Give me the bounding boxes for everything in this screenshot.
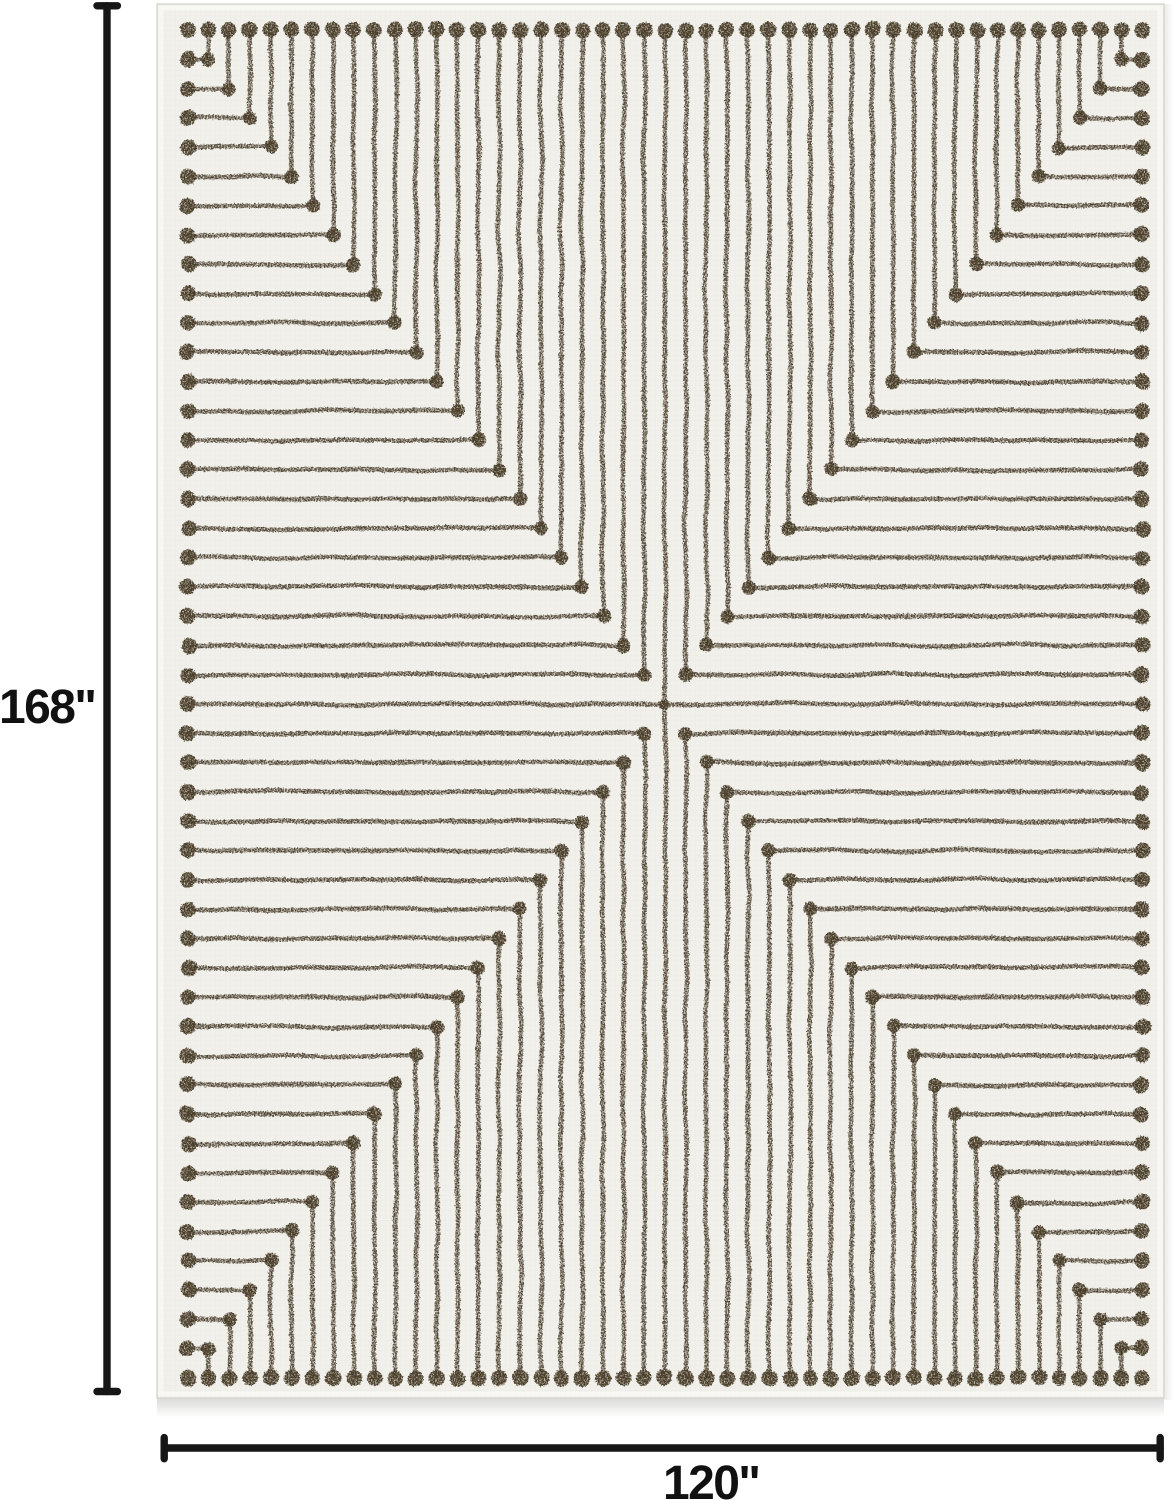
svg-text:120": 120": [663, 1457, 759, 1500]
svg-text:168": 168": [0, 681, 95, 734]
